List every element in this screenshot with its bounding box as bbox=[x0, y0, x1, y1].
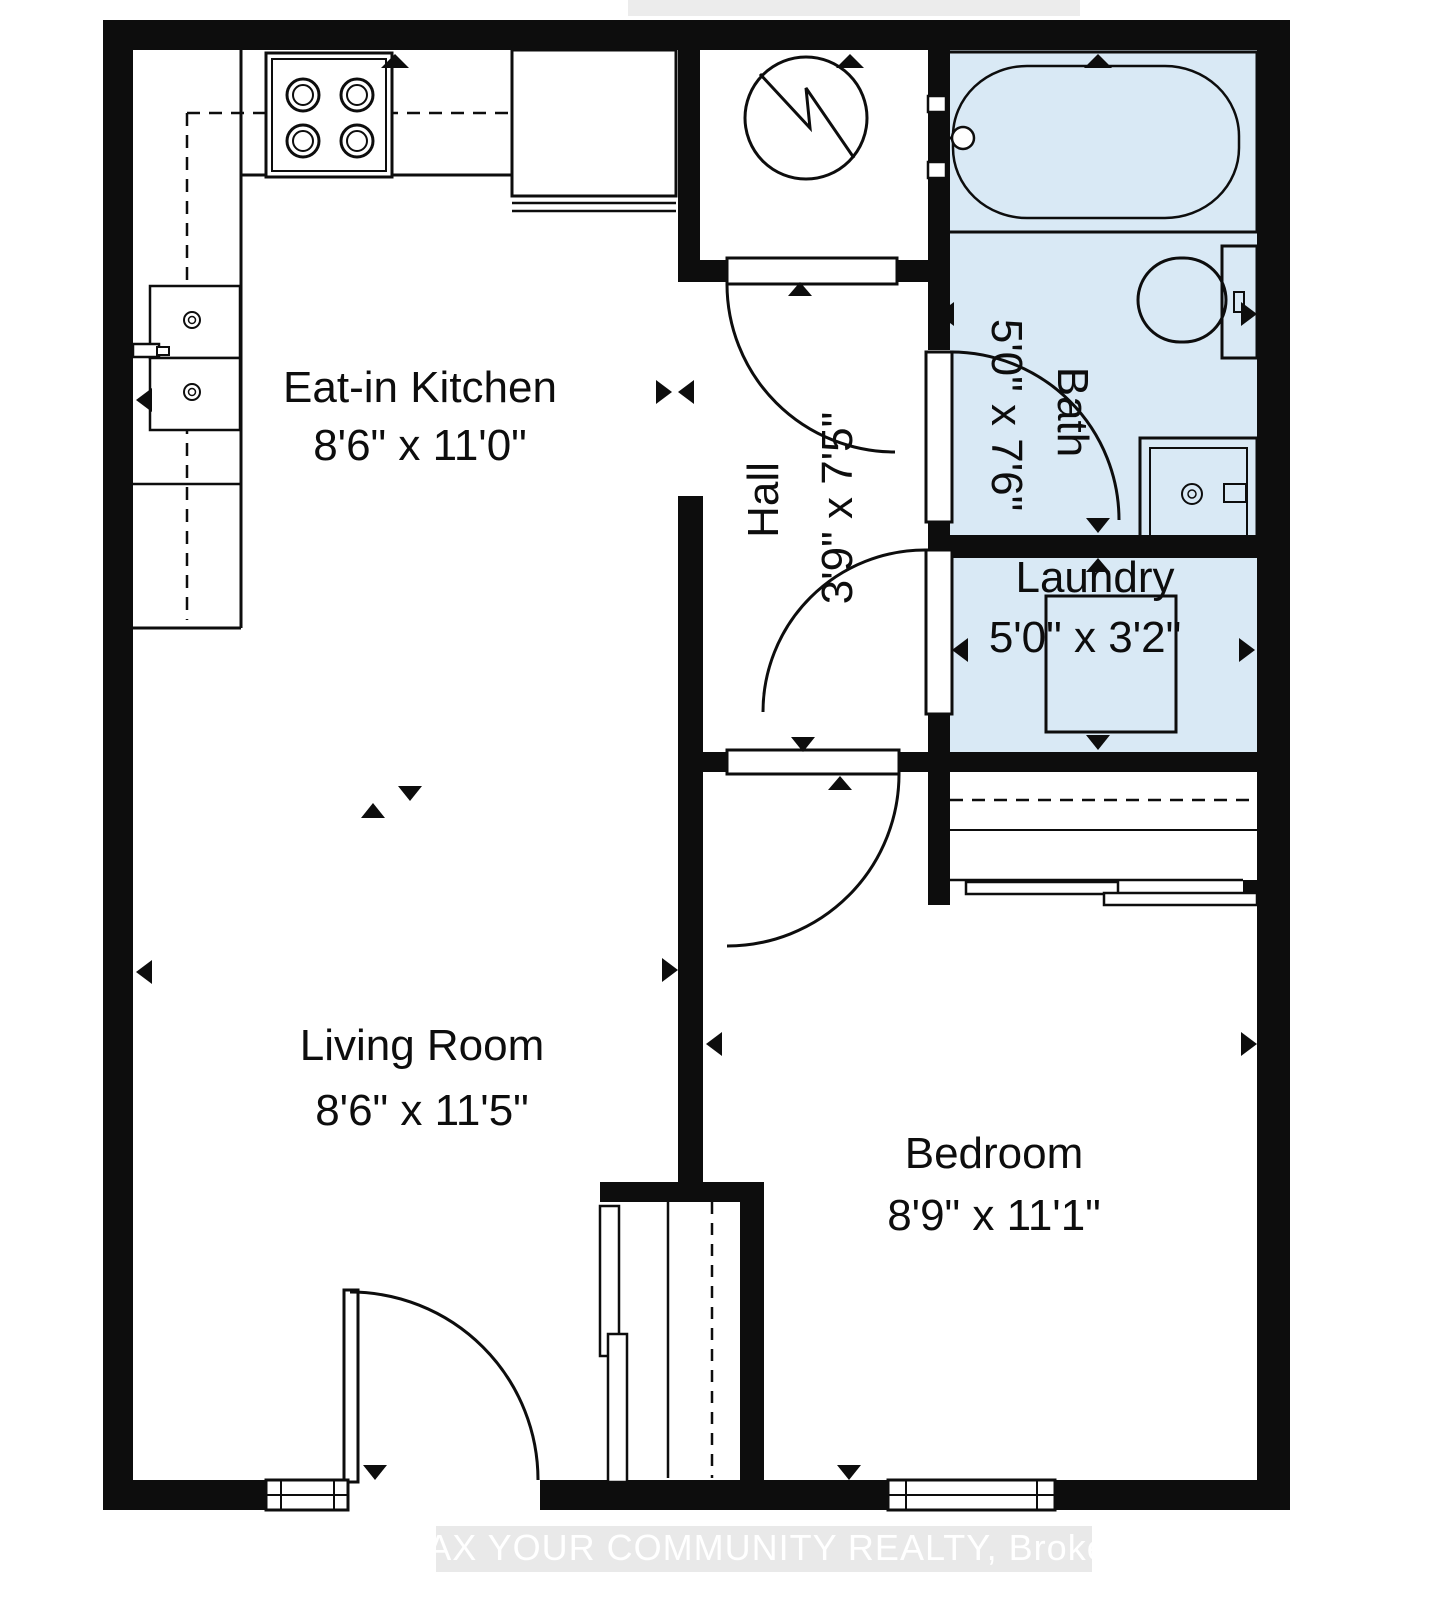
wall-left bbox=[103, 20, 133, 1510]
sliding-door-panel-1 bbox=[966, 882, 1118, 894]
entry-doorway bbox=[348, 1480, 540, 1510]
bath-label: Bath bbox=[1048, 367, 1097, 458]
wall-living-hall bbox=[678, 496, 703, 1202]
bedroom-dims: 8'9" x 11'1" bbox=[887, 1191, 1101, 1240]
wall-bottom-2 bbox=[540, 1480, 888, 1510]
stove-icon bbox=[266, 53, 392, 177]
kitchen-faucet bbox=[133, 344, 159, 357]
tub-faucet-handle-1 bbox=[928, 96, 946, 112]
laundry-door-leaf bbox=[926, 550, 952, 714]
bath-dims: 5'0" x 7'6" bbox=[982, 319, 1031, 511]
wall-top bbox=[103, 20, 1290, 50]
wall-bottom-1 bbox=[103, 1480, 266, 1510]
wall-entry-closet-top bbox=[600, 1182, 764, 1202]
utility-door-leaf bbox=[727, 258, 897, 284]
kitchen-label: Eat-in Kitchen bbox=[283, 363, 557, 412]
refrigerator-icon bbox=[512, 50, 676, 211]
kitchen-dims: 8'6" x 11'0" bbox=[313, 421, 527, 470]
living-room-window bbox=[266, 1480, 348, 1510]
hall-dims: 3'9" x 7'5" bbox=[813, 412, 862, 604]
bedroom-door-leaf bbox=[727, 750, 899, 774]
sliding-door-panel-2 bbox=[1104, 893, 1257, 905]
floor-plan-page: Eat-in Kitchen 8'6" x 11'0" Hall 3'9" x … bbox=[0, 0, 1450, 1612]
wall-right bbox=[1257, 20, 1290, 1510]
living-label: Living Room bbox=[300, 1021, 545, 1070]
entry-door-leaf bbox=[344, 1290, 358, 1482]
bedroom-label: Bedroom bbox=[905, 1129, 1084, 1178]
water-heater-icon bbox=[745, 57, 867, 179]
bedroom-window bbox=[888, 1480, 1055, 1510]
living-dims: 8'6" x 11'5" bbox=[315, 1086, 529, 1135]
watermark-top bbox=[628, 0, 1080, 16]
watermark: REMAX YOUR COMMUNITY REALTY, Brokerage bbox=[344, 1526, 1184, 1572]
floor-plan: Eat-in Kitchen 8'6" x 11'0" Hall 3'9" x … bbox=[0, 0, 1450, 1612]
closet-door-panel-2 bbox=[608, 1334, 627, 1482]
wall-wet-lower bbox=[928, 712, 950, 905]
wall-hall-laundry-bottom bbox=[898, 752, 1257, 772]
wall-bottom-3 bbox=[1055, 1480, 1290, 1510]
laundry-label: Laundry bbox=[1015, 553, 1174, 602]
tub-faucet-handle-2 bbox=[928, 162, 946, 178]
wall-utility-bottom-left bbox=[678, 260, 728, 282]
bath-door-leaf bbox=[926, 352, 952, 522]
wall-entry-closet-right bbox=[740, 1202, 764, 1480]
wall-utility-bottom-right bbox=[896, 260, 928, 282]
watermark-text: REMAX YOUR COMMUNITY REALTY, Brokerage bbox=[344, 1527, 1184, 1568]
tub-spout bbox=[952, 127, 974, 149]
wall-utility-left bbox=[678, 50, 700, 282]
hall-label: Hall bbox=[739, 462, 788, 538]
laundry-dims: 5'0" x 3'2" bbox=[989, 613, 1181, 662]
